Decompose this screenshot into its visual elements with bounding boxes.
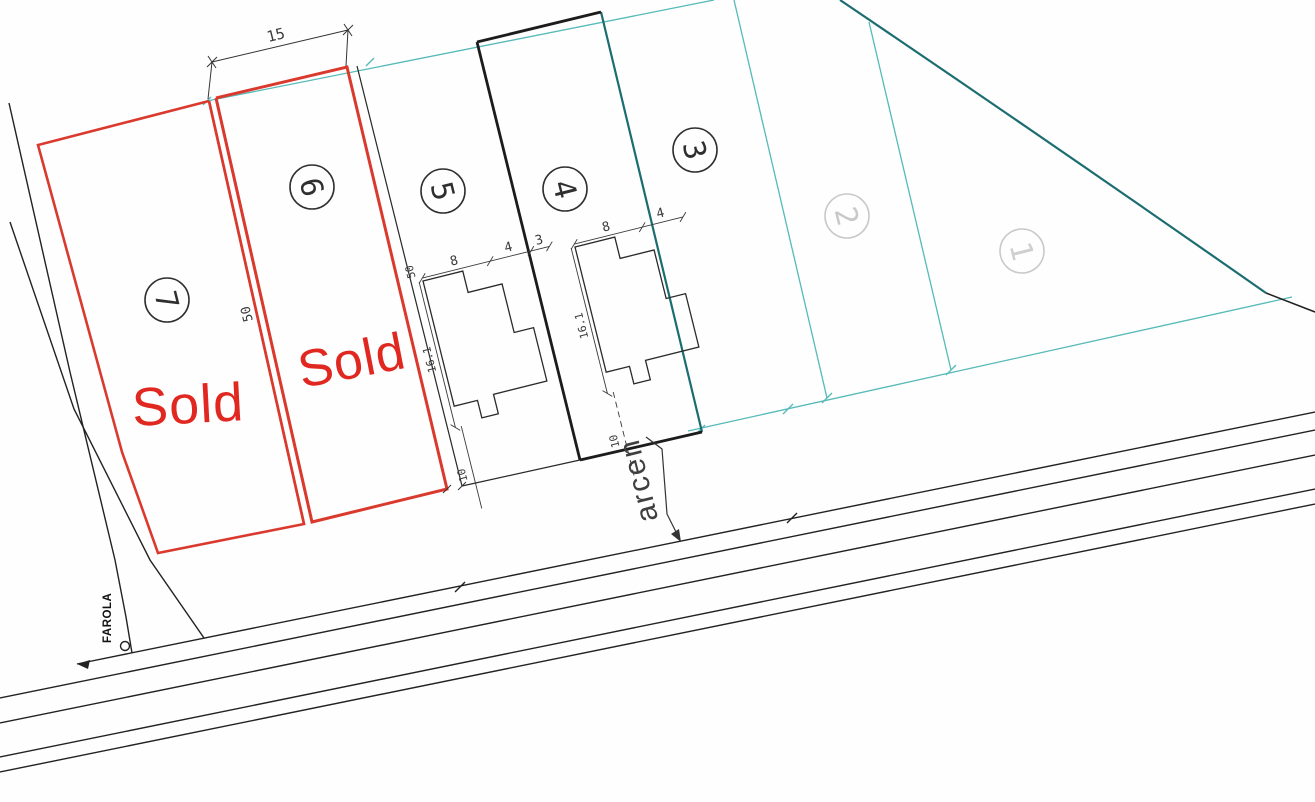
site-plan: FAROLA — [0, 0, 1315, 802]
dim-15-label: 15 — [265, 24, 287, 46]
house4-side-label: 4 — [655, 206, 666, 222]
plot2-right-boundary — [869, 22, 951, 370]
plot7-number: 7 — [147, 287, 185, 313]
plot2-number: 2 — [827, 203, 865, 229]
site-plan-drawing: FAROLA — [0, 0, 1315, 802]
plot-number-labels: 7 6 5 4 3 2 1 — [147, 137, 1040, 313]
house5-setback-label: 10 — [455, 467, 471, 483]
road-line-2 — [0, 430, 1315, 698]
plot5-number: 5 — [423, 178, 461, 204]
farola-arrow — [77, 660, 90, 669]
house-plot4: 8 4 16.1 10 — [552, 201, 746, 485]
plot1-top-boundary — [840, 0, 1266, 293]
plot4-number: 4 — [545, 176, 583, 202]
plot7-boundary — [38, 101, 304, 553]
plot6-boundary — [216, 67, 447, 522]
dim-ext — [208, 62, 212, 99]
plot1-number: 1 — [1002, 238, 1040, 264]
house5-width-label: 8 — [449, 253, 460, 269]
boundary-tick — [946, 365, 956, 375]
road-edge-top — [77, 412, 1315, 664]
plot5-front — [462, 460, 580, 486]
houses-gap-label: 3 — [534, 232, 545, 248]
farola-label: FAROLA — [102, 593, 114, 643]
plot4-top — [477, 12, 601, 42]
shoulder-label: arcen — [612, 435, 665, 526]
boundary-tick — [822, 393, 832, 403]
road-lines — [0, 103, 1315, 772]
house-block-start-label: 50 — [403, 264, 419, 280]
plot4-left — [477, 42, 580, 460]
plot5-boundary — [357, 66, 580, 486]
plot4-boundary — [477, 12, 702, 460]
sold-label-plot6: Sold — [293, 322, 410, 400]
west-road-line-1 — [9, 103, 132, 653]
dark-teal-boundaries — [601, 0, 1266, 432]
shoulder-callout: arcen — [612, 435, 681, 542]
house-plot5: 8 4 16.1 10 — [400, 230, 611, 514]
plot6-number: 6 — [292, 174, 330, 200]
dim-ext — [346, 30, 348, 66]
parcel-back-line — [207, 0, 714, 101]
plot3-number: 3 — [675, 137, 713, 163]
house5-footprint — [423, 258, 552, 424]
sold-label-plot7: Sold — [130, 372, 245, 438]
house4-width-label: 8 — [601, 219, 612, 235]
plot7-right-line — [209, 101, 304, 524]
house4-footprint — [575, 224, 704, 390]
east-corner-line — [1266, 293, 1315, 312]
front-boundary-east — [688, 297, 1292, 431]
plot3-right-boundary — [734, 0, 827, 398]
streetlight-symbol — [121, 642, 130, 651]
house5-side-label: 4 — [503, 240, 514, 256]
plot4-right-boundary — [601, 12, 702, 432]
road-line-4 — [0, 489, 1315, 757]
boundary-tick — [366, 58, 374, 66]
shoulder-arrow — [671, 529, 681, 542]
